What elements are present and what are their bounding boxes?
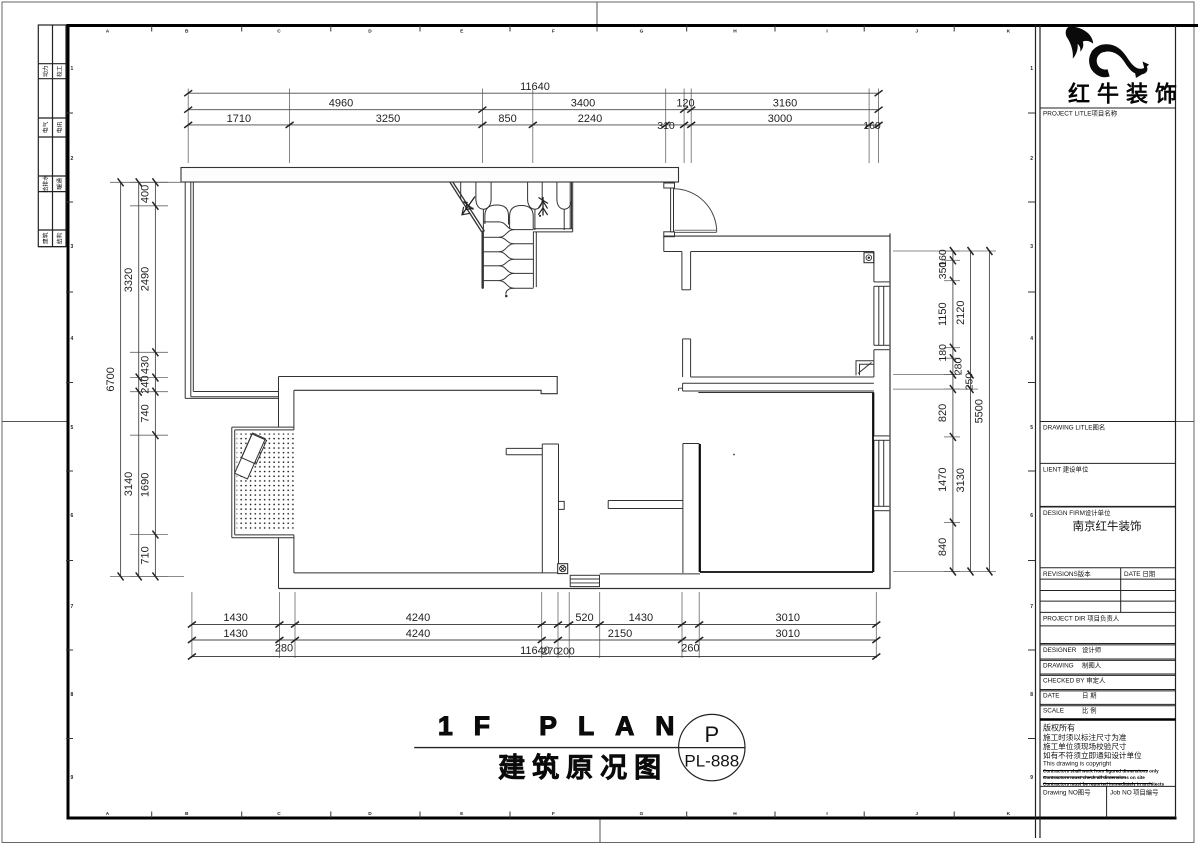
svg-text:施工时须以标注尺寸为准: 施工时须以标注尺寸为准 [1043,732,1127,742]
svg-text:F: F [552,811,555,817]
svg-text:740: 740 [140,404,152,422]
svg-text:A: A [106,811,110,817]
svg-text:PL-888: PL-888 [684,752,739,771]
svg-text:1: 1 [1030,66,1033,72]
svg-text:日 期: 日 期 [1082,692,1097,700]
svg-text:1710: 1710 [227,113,251,125]
svg-text:暖通: 暖通 [56,178,64,190]
svg-text:如有不符须立即通知设计单位: 如有不符须立即通知设计单位 [1043,750,1142,760]
svg-text:3000: 3000 [768,113,792,125]
svg-text:9: 9 [1030,775,1033,781]
svg-text:J: J [915,29,918,35]
svg-text:1F PLAN: 1F PLAN [438,711,695,741]
svg-text:820: 820 [937,404,949,422]
svg-text:C: C [277,29,281,35]
svg-text:8: 8 [1030,692,1033,698]
svg-text:1430: 1430 [223,612,247,624]
svg-text:建筑原况图: 建筑原况图 [498,752,668,783]
svg-text:1430: 1430 [629,612,653,624]
svg-text:710: 710 [140,546,152,564]
svg-text:南京红牛装饰: 南京红牛装饰 [1073,519,1142,533]
svg-text:160: 160 [863,120,881,132]
svg-text:7: 7 [1030,604,1033,610]
svg-text:2240: 2240 [578,113,602,125]
svg-text:A: A [106,29,110,35]
svg-text:G: G [640,811,644,817]
svg-text:3320: 3320 [123,268,135,292]
svg-text:C: C [277,811,281,817]
svg-text:1430: 1430 [223,628,247,640]
svg-text:3: 3 [1030,244,1033,250]
svg-text:260: 260 [681,643,699,655]
svg-text:3010: 3010 [776,628,800,640]
svg-text:版权所有: 版权所有 [1043,723,1075,733]
svg-text:DESIGNER: DESIGNER [1043,647,1077,654]
svg-text:DATE: DATE [1043,693,1060,700]
svg-text:P: P [704,722,719,747]
svg-text:2: 2 [71,156,74,162]
svg-text:6: 6 [1030,513,1033,519]
svg-text:430: 430 [140,356,152,374]
svg-text:180: 180 [937,344,949,362]
svg-text:3010: 3010 [776,612,800,624]
svg-text:1150: 1150 [937,302,949,326]
svg-text:4240: 4240 [406,612,430,624]
svg-text:电讯: 电讯 [56,122,64,134]
svg-text:K: K [1007,811,1011,817]
svg-text:4240: 4240 [406,628,430,640]
svg-text:5: 5 [1030,425,1033,431]
svg-text:2: 2 [1030,156,1033,162]
svg-text:840: 840 [937,538,949,556]
svg-text:This drawing is copyright: This drawing is copyright [1043,761,1111,768]
svg-text:3: 3 [71,244,74,250]
svg-text:5500: 5500 [974,399,986,423]
svg-text:DRAWING LITLE图名: DRAWING LITLE图名 [1043,423,1105,432]
svg-text:比 例: 比 例 [1082,706,1097,715]
svg-text:7: 7 [71,604,74,610]
svg-text:1690: 1690 [140,473,152,497]
svg-text:B: B [185,29,189,35]
svg-text:PROJECT DIR 项目负责人: PROJECT DIR 项目负责人 [1043,614,1120,623]
svg-text:F: F [552,29,555,35]
svg-text:400: 400 [140,185,152,203]
svg-text:3130: 3130 [955,468,967,492]
svg-text:电气: 电气 [42,122,50,134]
svg-text:项目编号: 项目编号 [1133,788,1159,797]
svg-text:11640: 11640 [520,81,550,93]
svg-text:D: D [368,29,372,35]
svg-text:6700: 6700 [105,367,117,391]
svg-text:280: 280 [953,357,965,375]
svg-text:9: 9 [71,775,74,781]
svg-text:D: D [368,811,372,817]
svg-text:5: 5 [71,425,74,431]
svg-text:校工: 校工 [56,65,64,77]
svg-text:DATE 日期: DATE 日期 [1124,570,1155,578]
svg-text:PROJECT LITLE项目名称: PROJECT LITLE项目名称 [1043,109,1118,118]
svg-text:3400: 3400 [571,98,595,110]
svg-text:240: 240 [140,375,152,393]
svg-text:Job NO: Job NO [1110,790,1132,797]
svg-text:2150: 2150 [608,628,632,640]
svg-text:REVISIONS版本: REVISIONS版本 [1043,569,1091,578]
svg-text:310: 310 [657,120,675,132]
svg-text:SCALE: SCALE [1043,708,1064,715]
svg-text:结构: 结构 [56,232,64,244]
svg-text:动力: 动力 [42,65,50,77]
svg-text:4: 4 [1030,336,1033,342]
svg-text:520: 520 [575,612,593,624]
svg-text:制图人: 制图人 [1082,661,1102,670]
svg-text:6: 6 [71,513,74,519]
svg-text:J: J [915,811,918,817]
svg-text:Drawing NO图号: Drawing NO图号 [1043,789,1091,797]
svg-text:1: 1 [71,66,74,72]
svg-text:4960: 4960 [329,98,353,110]
svg-text:350: 350 [937,262,949,280]
svg-text:K: K [1007,29,1011,35]
svg-text:红牛装饰: 红牛装饰 [1068,82,1184,107]
svg-text:850: 850 [498,113,516,125]
svg-text:3250: 3250 [376,113,400,125]
svg-text:H: H [733,29,737,35]
svg-text:B: B [185,811,189,817]
svg-text:G: G [640,29,644,35]
svg-text:施工单位须现场校验尺寸: 施工单位须现场校验尺寸 [1043,741,1127,751]
svg-text:2490: 2490 [140,267,152,291]
svg-text:LIENT 建设单位: LIENT 建设单位 [1043,465,1089,474]
svg-text:200: 200 [557,646,575,658]
svg-text:2120: 2120 [955,300,967,324]
svg-text:4: 4 [71,336,74,342]
svg-text:1470: 1470 [937,467,949,491]
svg-text:DRAWING: DRAWING [1043,663,1074,670]
svg-text:DESIGN FIRM设计单位: DESIGN FIRM设计单位 [1043,508,1111,517]
svg-text:120: 120 [676,98,694,110]
svg-text:8: 8 [71,692,74,698]
svg-text:CHECKED BY 审定人: CHECKED BY 审定人 [1043,676,1106,685]
svg-text:H: H [733,811,737,817]
svg-text:设计师: 设计师 [1082,645,1102,654]
svg-text:3140: 3140 [123,472,135,496]
svg-text:给排水: 给排水 [42,175,50,193]
svg-text:3160: 3160 [773,98,797,110]
svg-text:建筑: 建筑 [42,232,50,244]
svg-text:280: 280 [275,643,293,655]
